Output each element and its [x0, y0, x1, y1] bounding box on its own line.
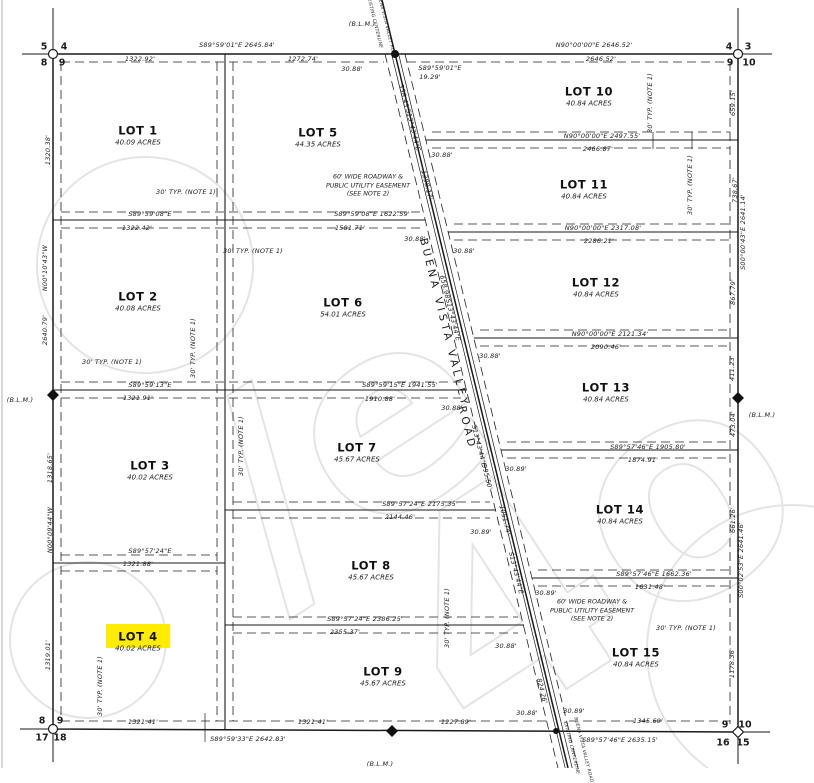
- distance-label: 338.43': [397, 83, 411, 110]
- bearing-distance-label: S89°59'08"E: [128, 210, 171, 218]
- lot-label: LOT 945.67 ACRES: [360, 665, 406, 688]
- distance-label: 1227.89': [441, 718, 471, 726]
- section-corner-number: 9: [727, 58, 734, 69]
- easement-width-note: 30' TYP. (NOTE 1): [656, 624, 716, 632]
- lot-acres: 40.84 ACRES: [582, 396, 630, 404]
- distance-label: 2286.21': [584, 237, 614, 245]
- lot-acres: 40.08 ACRES: [115, 305, 161, 313]
- lot-label: LOT 1140.84 ACRES: [560, 178, 608, 201]
- distance-label: 30.89': [535, 589, 557, 597]
- bearing-distance-label: N00°10'43"W: [41, 245, 49, 291]
- blm-label: (B.L.M.): [367, 760, 394, 768]
- bearing-distance-label: S89°57'24"E 2175.35': [382, 500, 458, 508]
- lot-label: LOT 440.02 ACRES: [115, 630, 161, 653]
- bearing-distance-label: S89°59'01"E 2645.84': [199, 41, 275, 49]
- distance-label: 30.88': [479, 352, 501, 360]
- distance-label: 1320.38': [44, 135, 52, 165]
- distance-label: 2640.79': [41, 315, 49, 345]
- distance-label: 30.88': [431, 151, 453, 159]
- lot-label: LOT 1340.84 ACRES: [582, 381, 630, 404]
- lot-acres: 40.09 ACRES: [115, 139, 161, 147]
- distance-label: 1874.91': [628, 456, 658, 464]
- lot-acres: 40.02 ACRES: [127, 474, 173, 482]
- section-corner-number: 10: [738, 720, 751, 731]
- bearing-distance-label: N90°00'00"E 2121.34': [572, 330, 649, 338]
- easement-width-note: 30' TYP. (NOTE 1): [156, 188, 216, 196]
- lot-acres: 40.84 ACRES: [560, 193, 608, 201]
- easement-width-note: 30' TYP. (NOTE 1): [237, 416, 245, 476]
- bearing-distance-label: S89°57'24"E 2386.25': [327, 615, 403, 623]
- distance-label: 1321.91': [123, 394, 153, 402]
- bearing-distance-label: S89°57'46"E 1662.36': [616, 570, 692, 578]
- section-corner-number: 4: [61, 42, 68, 53]
- lot-label: LOT 1040.84 ACRES: [565, 85, 613, 108]
- distance-label: 2466.87': [583, 145, 613, 153]
- lot-acres: 40.84 ACRES: [565, 100, 613, 108]
- distance-label: 824.26': [535, 677, 549, 704]
- easement-width-note: 30' TYP. (NOTE 1): [82, 358, 142, 366]
- distance-label: 867.79': [729, 279, 737, 305]
- lot-name: LOT 3: [127, 459, 173, 473]
- distance-label: 1319.01': [44, 640, 52, 670]
- lot-name: LOT 12: [572, 276, 620, 290]
- bearing-distance-label: S89°59'15"E 1941.55': [362, 381, 438, 389]
- distance-label: 2355.37': [330, 628, 360, 636]
- lot-label: LOT 1540.84 ACRES: [612, 646, 660, 669]
- roadway-easement-note: 60' WIDE ROADWAY &PUBLIC UTILITY EASEMEN…: [550, 598, 634, 624]
- distance-label: 19.29': [419, 73, 441, 81]
- lot-name: LOT 11: [560, 178, 608, 192]
- section-corner-number: 5: [41, 42, 48, 53]
- distance-label: 2090.46': [591, 343, 621, 351]
- section-corner-number: 9: [722, 720, 729, 731]
- distance-label: 661.26': [729, 507, 737, 533]
- bearing-distance-label: S89°59'13"E: [128, 381, 171, 389]
- bearing-distance-label: S00°00'43"E 2641.14': [739, 194, 747, 270]
- lot-name: LOT 14: [596, 503, 644, 517]
- bearing-distance-label: N90°00'00"E 2497.55': [564, 132, 641, 140]
- distance-label: 1321.88': [123, 560, 153, 568]
- distance-label: 1272.74': [288, 55, 318, 63]
- distance-label: 30.88': [453, 247, 475, 255]
- easement-width-note: 30' TYP. (NOTE 1): [686, 155, 694, 215]
- distance-label: 30.88': [495, 642, 517, 650]
- blm-label: (B.L.M.): [749, 411, 776, 419]
- lot-label: LOT 240.08 ACRES: [115, 290, 161, 313]
- distance-label: 738.67': [731, 177, 739, 203]
- section-corner-number: 9: [59, 58, 66, 69]
- plat-labels: (B.L.M.)(B.L.M.)(B.L.M.)(B.L.M.)S89°59'0…: [0, 0, 814, 768]
- bearing-distance-label: S89°59'33"E 2642.83': [210, 735, 286, 743]
- easement-width-note: 30' TYP. (NOTE 1): [189, 318, 197, 378]
- lot-acres: 40.84 ACRES: [572, 291, 620, 299]
- distance-label: 995.50': [480, 463, 494, 490]
- lot-label: LOT 1240.84 ACRES: [572, 276, 620, 299]
- lot-name: LOT 15: [612, 646, 660, 660]
- distance-label: 473.04': [729, 411, 737, 437]
- lot-label: LOT 1440.84 ACRES: [596, 503, 644, 526]
- bearing-distance-label: S89°57'46"E 1905.80': [610, 443, 686, 451]
- section-corner-number: 8: [39, 716, 46, 727]
- bearing-distance-label: S00°02'53"E 2641.46': [737, 522, 745, 598]
- distance-label: 659.15': [729, 90, 737, 116]
- section-corner-number: 17: [35, 733, 48, 744]
- distance-label: 1322.42': [122, 224, 152, 232]
- bearing-distance-label: S13°43'44"E: [507, 551, 525, 595]
- distance-label: 30.88': [341, 65, 363, 73]
- distance-label: 1318.65': [46, 453, 54, 483]
- blm-label: (B.L.M.): [7, 396, 34, 404]
- lot-name: LOT 6: [320, 296, 366, 310]
- lot-label: LOT 745.67 ACRES: [334, 441, 380, 464]
- lot-name: LOT 10: [565, 85, 613, 99]
- roadway-easement-note: 60' WIDE ROADWAY &PUBLIC UTILITY EASEMEN…: [326, 173, 410, 199]
- lot-name: LOT 13: [582, 381, 630, 395]
- bearing-distance-label: N90°00'00"E 2317.08': [565, 224, 642, 232]
- section-corner-number: 8: [41, 58, 48, 69]
- lot-acres: 45.67 ACRES: [334, 456, 380, 464]
- easement-width-note: 30' TYP. (NOTE 1): [646, 73, 654, 133]
- lot-label: LOT 654.01 ACRES: [320, 296, 366, 319]
- lot-acres: 40.84 ACRES: [612, 661, 660, 669]
- bearing-distance-label: N90°00'00"E 2646.52': [556, 41, 633, 49]
- section-corner-number: 4: [726, 42, 733, 53]
- lot-name: LOT 7: [334, 441, 380, 455]
- easement-width-note: 30' TYP. (NOTE 1): [443, 588, 451, 648]
- bearing-distance-label: S89°57'24"E: [128, 547, 171, 555]
- plat-map: /e 4o: [0, 0, 814, 768]
- lot-label: LOT 845.67 ACRES: [348, 559, 394, 582]
- distance-label: 30.89': [505, 465, 527, 473]
- distance-label: 2646.52': [586, 55, 616, 63]
- bearing-distance-label: S13°43'44"E: [404, 108, 422, 152]
- distance-label: 1581.71': [335, 224, 365, 232]
- bearing-distance-label: S89°59'01"E: [418, 64, 461, 72]
- distance-label: 1398.17': [419, 169, 434, 200]
- section-corner-number: 9: [57, 716, 64, 727]
- lot-name: LOT 1: [115, 124, 161, 138]
- easement-width-note: 30' TYP. (NOTE 1): [96, 656, 104, 716]
- lot-acres: 45.67 ACRES: [348, 574, 394, 582]
- lot-acres: 45.67 ACRES: [360, 680, 406, 688]
- distance-label: 1321.41': [128, 718, 158, 726]
- lot-label: LOT 340.02 ACRES: [127, 459, 173, 482]
- section-corner-number: 16: [716, 738, 729, 749]
- lot-acres: 44.35 ACRES: [295, 141, 341, 149]
- distance-label: 1631.48': [635, 583, 665, 591]
- distance-label: 1178.36': [728, 648, 736, 678]
- distance-label: 30.89': [563, 707, 585, 715]
- section-corner-number: 3: [745, 42, 752, 53]
- lot-acres: 40.84 ACRES: [596, 518, 644, 526]
- distance-label: 1910.88': [365, 395, 395, 403]
- lot-name: LOT 9: [360, 665, 406, 679]
- lot-name: LOT 2: [115, 290, 161, 304]
- bearing-distance-label: S89°59'08"E 1622.59': [334, 210, 410, 218]
- lot-acres: 54.01 ACRES: [320, 311, 366, 319]
- distance-label: 411.23': [728, 355, 736, 381]
- lot-name: LOT 5: [295, 126, 341, 140]
- distance-label: 30.88': [516, 709, 538, 717]
- lot-label: LOT 140.09 ACRES: [115, 124, 161, 147]
- distance-label: 2144.46': [385, 513, 415, 521]
- bearing-distance-label: S89°57'46"E 2635.15': [582, 736, 658, 744]
- distance-label: 1322.92': [125, 55, 155, 63]
- bearing-distance-label: N00°09'44"W: [46, 507, 54, 553]
- distance-label: 1321.41': [298, 718, 328, 726]
- section-corner-number: 15: [736, 738, 749, 749]
- section-corner-number: 18: [53, 733, 66, 744]
- lot-acres: 40.02 ACRES: [115, 645, 161, 653]
- distance-label: 30.89': [470, 528, 492, 536]
- distance-label: 1051.74': [497, 504, 512, 535]
- distance-label: 1345.69': [633, 717, 663, 725]
- lot-label: LOT 544.35 ACRES: [295, 126, 341, 149]
- lot-name: LOT 4: [115, 630, 161, 644]
- lot-name: LOT 8: [348, 559, 394, 573]
- section-corner-number: 10: [742, 58, 755, 69]
- easement-width-note: 30' TYP. (NOTE 1): [223, 247, 283, 255]
